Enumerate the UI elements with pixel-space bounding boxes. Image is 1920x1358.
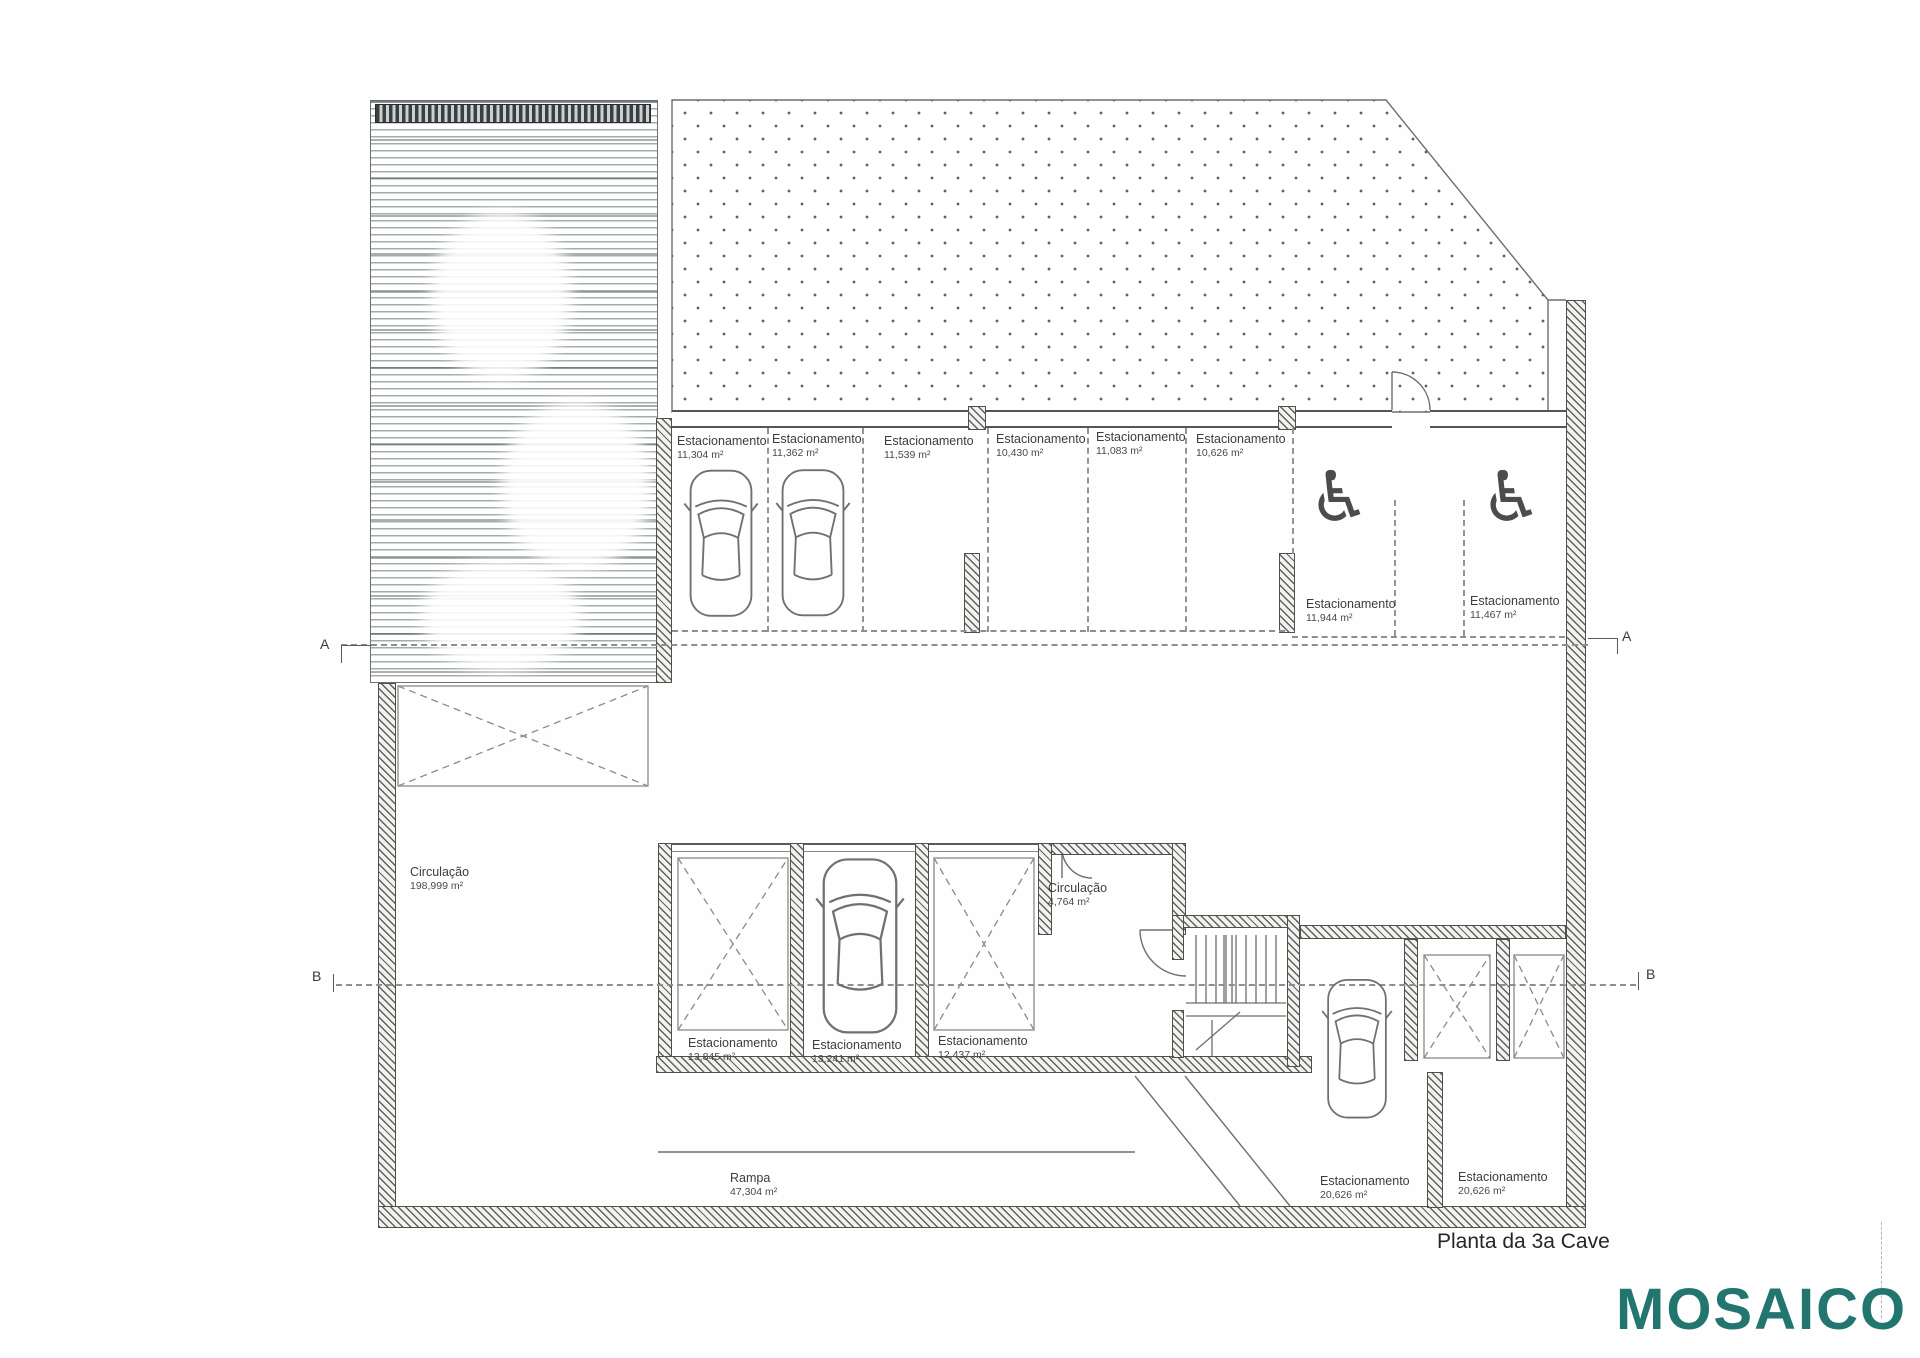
wall-outer-bottom xyxy=(378,1206,1586,1228)
spot-name: Estacionamento xyxy=(812,1037,902,1053)
spot-area: 10,626 m² xyxy=(1196,447,1286,461)
spot-name: Estacionamento xyxy=(1320,1173,1410,1189)
car-top-view-2 xyxy=(774,458,852,626)
section-marker-a-right: A xyxy=(1622,628,1631,644)
spot-area: 13,845 m² xyxy=(688,1051,778,1065)
wall-parking-row-top-2 xyxy=(1430,410,1566,428)
room-area: 4,764 m² xyxy=(1048,896,1107,910)
x-box-right-2 xyxy=(1514,955,1564,1058)
room-area: 47,304 m² xyxy=(730,1186,777,1200)
pillar-top-wall-2 xyxy=(1278,406,1296,430)
stippled-ground-area xyxy=(672,100,1548,412)
spot-area: 11,304 m² xyxy=(677,449,767,463)
wall-stub-1 xyxy=(964,553,980,633)
parking-label-top-1: Estacionamento 11,304 m² xyxy=(677,433,767,463)
section-line-b xyxy=(336,984,1636,986)
parking-label-top-2: Estacionamento 11,362 m² xyxy=(772,431,862,461)
room-name: Circulação xyxy=(1048,880,1107,896)
room-area: 198,999 m² xyxy=(410,880,469,894)
spot-name: Estacionamento xyxy=(677,433,767,449)
spot-name: Estacionamento xyxy=(1096,429,1186,445)
spot-separator-dash-3 xyxy=(987,428,989,632)
spot-name: Estacionamento xyxy=(772,431,862,447)
x-box-right-1 xyxy=(1424,955,1490,1058)
spot-area: 13,241 m² xyxy=(812,1053,902,1067)
mosaico-logo: MOSAICO xyxy=(1616,1276,1907,1343)
spot-separator-dash-4 xyxy=(1087,428,1089,632)
wheelchair-icon: ♿ xyxy=(1480,462,1543,532)
top-row-bottom-dash xyxy=(672,630,1285,632)
wall-right-divider-2 xyxy=(1496,939,1510,1061)
spot-area: 12,437 m² xyxy=(938,1049,1028,1063)
car-top-view-3 xyxy=(812,852,908,1038)
spot-area: 11,467 m² xyxy=(1470,609,1560,623)
scan-fade-blob xyxy=(431,211,571,381)
spot-name: Estacionamento xyxy=(938,1033,1028,1049)
x-box-under-structure xyxy=(398,686,648,786)
wall-stub-2 xyxy=(1279,553,1295,633)
scan-fade-blob xyxy=(501,401,651,571)
wall-right-section-top xyxy=(1300,925,1566,939)
section-marker-a-left: A xyxy=(320,636,329,652)
accessible-spots-bottom-dash xyxy=(1292,636,1565,638)
covered-structure-hatch xyxy=(370,100,658,683)
wall-stair-left-b xyxy=(1172,1010,1184,1058)
spot-area: 20,626 m² xyxy=(1320,1189,1410,1203)
spot-name: Estacionamento xyxy=(996,431,1086,447)
spot-separator-dash-6 xyxy=(1292,428,1294,554)
wall-stair-top xyxy=(1172,915,1300,928)
spot-area: 10,430 m² xyxy=(996,447,1086,461)
ramp-diagonal-2 xyxy=(1185,1076,1290,1206)
wall-right-divider-lower xyxy=(1427,1072,1443,1208)
floor-plan-page: A A B B xyxy=(0,0,1920,1358)
spot-area: 11,539 m² xyxy=(884,449,974,463)
parking-label-accessible-2: Estacionamento 11,467 m² xyxy=(1470,593,1560,623)
room-label-circulacao-main: Circulação 198,999 m² xyxy=(410,864,469,894)
wall-stair-right xyxy=(1287,915,1300,1067)
structure-top-band xyxy=(375,104,651,123)
spot-name: Estacionamento xyxy=(884,433,974,449)
scan-fade-blob xyxy=(421,561,581,671)
spot-separator-dash-8 xyxy=(1463,500,1465,636)
spot-separator-dash-2 xyxy=(862,428,864,632)
spot-area: 11,944 m² xyxy=(1306,612,1396,626)
x-box-middle-1 xyxy=(678,858,788,1030)
wall-stair-left-a xyxy=(1172,915,1184,960)
x-box-middle-2 xyxy=(934,858,1034,1030)
section-bracket-a-right xyxy=(1588,638,1618,654)
parking-label-accessible-1: Estacionamento 11,944 m² xyxy=(1306,596,1396,626)
spot-name: Estacionamento xyxy=(1196,431,1286,447)
parking-label-middle-1: Estacionamento 13,845 m² xyxy=(688,1035,778,1065)
parking-label-bottom-2: Estacionamento 20,626 m² xyxy=(1458,1169,1548,1199)
spot-area: 11,362 m² xyxy=(772,447,862,461)
spot-area: 11,083 m² xyxy=(1096,445,1186,459)
ramp-diagonal-1 xyxy=(1135,1076,1240,1206)
section-line-a xyxy=(341,644,1588,646)
car-top-view-4 xyxy=(1320,952,1394,1144)
room-label-rampa: Rampa 47,304 m² xyxy=(730,1170,777,1200)
parking-label-top-3: Estacionamento 11,539 m² xyxy=(884,433,974,463)
wall-middle-row-top xyxy=(658,843,1052,852)
parking-label-top-6: Estacionamento 10,626 m² xyxy=(1196,431,1286,461)
stairs xyxy=(1186,935,1286,1056)
spot-area: 20,626 m² xyxy=(1458,1185,1548,1199)
spot-separator-dash-1 xyxy=(767,428,769,632)
wall-right-divider-1 xyxy=(1404,939,1418,1061)
car-top-view-1 xyxy=(682,460,760,625)
room-label-circulacao-small: Circulação 4,764 m² xyxy=(1048,880,1107,910)
wall-circroom-top xyxy=(1038,843,1186,855)
parking-label-middle-2: Estacionamento 13,241 m² xyxy=(812,1037,902,1067)
section-tick-b-right xyxy=(1638,972,1639,990)
section-tick-b-left xyxy=(333,974,334,992)
wall-outer-right xyxy=(1566,300,1586,1212)
parking-label-middle-3: Estacionamento 12,437 m² xyxy=(938,1033,1028,1063)
plan-title: Planta da 3a Cave xyxy=(1437,1230,1610,1254)
spot-name: Estacionamento xyxy=(1470,593,1560,609)
wall-middle-divider-1 xyxy=(658,843,672,1069)
room-name: Circulação xyxy=(410,864,469,880)
pillar-top-wall-1 xyxy=(968,406,986,430)
parking-label-top-4: Estacionamento 10,430 m² xyxy=(996,431,1086,461)
section-marker-b-right: B xyxy=(1646,966,1655,982)
spot-name: Estacionamento xyxy=(1458,1169,1548,1185)
wheelchair-icon: ♿ xyxy=(1308,462,1371,532)
section-marker-b-left: B xyxy=(312,968,321,984)
section-bracket-a-left xyxy=(341,645,371,663)
wall-outer-left xyxy=(378,683,396,1210)
parking-label-top-5: Estacionamento 11,083 m² xyxy=(1096,429,1186,459)
parking-label-bottom-1: Estacionamento 20,626 m² xyxy=(1320,1173,1410,1203)
spot-name: Estacionamento xyxy=(1306,596,1396,612)
room-name: Rampa xyxy=(730,1170,777,1186)
wall-middle-divider-2 xyxy=(790,843,804,1069)
wall-middle-divider-3 xyxy=(915,843,929,1069)
spot-name: Estacionamento xyxy=(688,1035,778,1051)
